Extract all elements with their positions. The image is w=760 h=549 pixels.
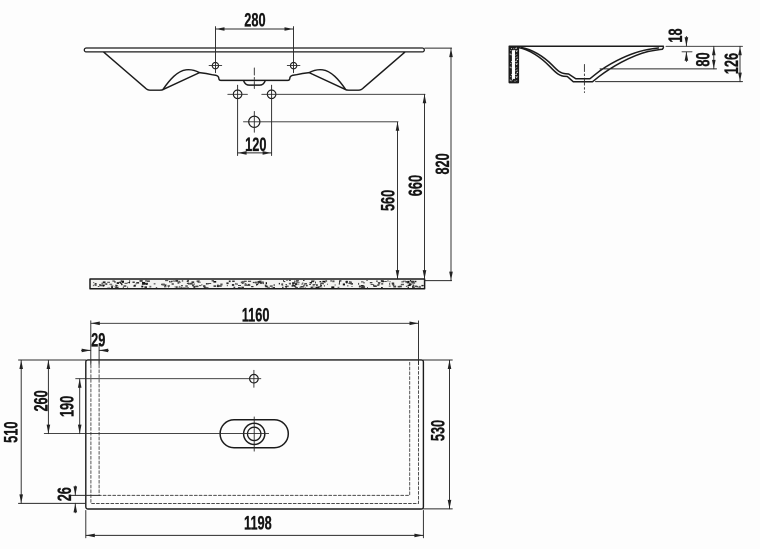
svg-text:18: 18 <box>665 28 686 42</box>
svg-text:560: 560 <box>378 190 399 211</box>
svg-text:190: 190 <box>57 396 78 417</box>
svg-text:280: 280 <box>244 10 265 31</box>
svg-text:126: 126 <box>721 53 742 74</box>
svg-text:29: 29 <box>91 330 105 351</box>
svg-text:820: 820 <box>432 153 453 174</box>
svg-text:1160: 1160 <box>242 305 270 326</box>
svg-text:510: 510 <box>1 422 22 443</box>
svg-text:26: 26 <box>54 487 75 501</box>
svg-text:660: 660 <box>406 175 427 196</box>
svg-text:1198: 1198 <box>244 513 272 534</box>
svg-text:120: 120 <box>245 135 266 156</box>
svg-text:80: 80 <box>693 52 714 66</box>
svg-text:530: 530 <box>428 420 449 441</box>
svg-text:260: 260 <box>31 390 52 411</box>
